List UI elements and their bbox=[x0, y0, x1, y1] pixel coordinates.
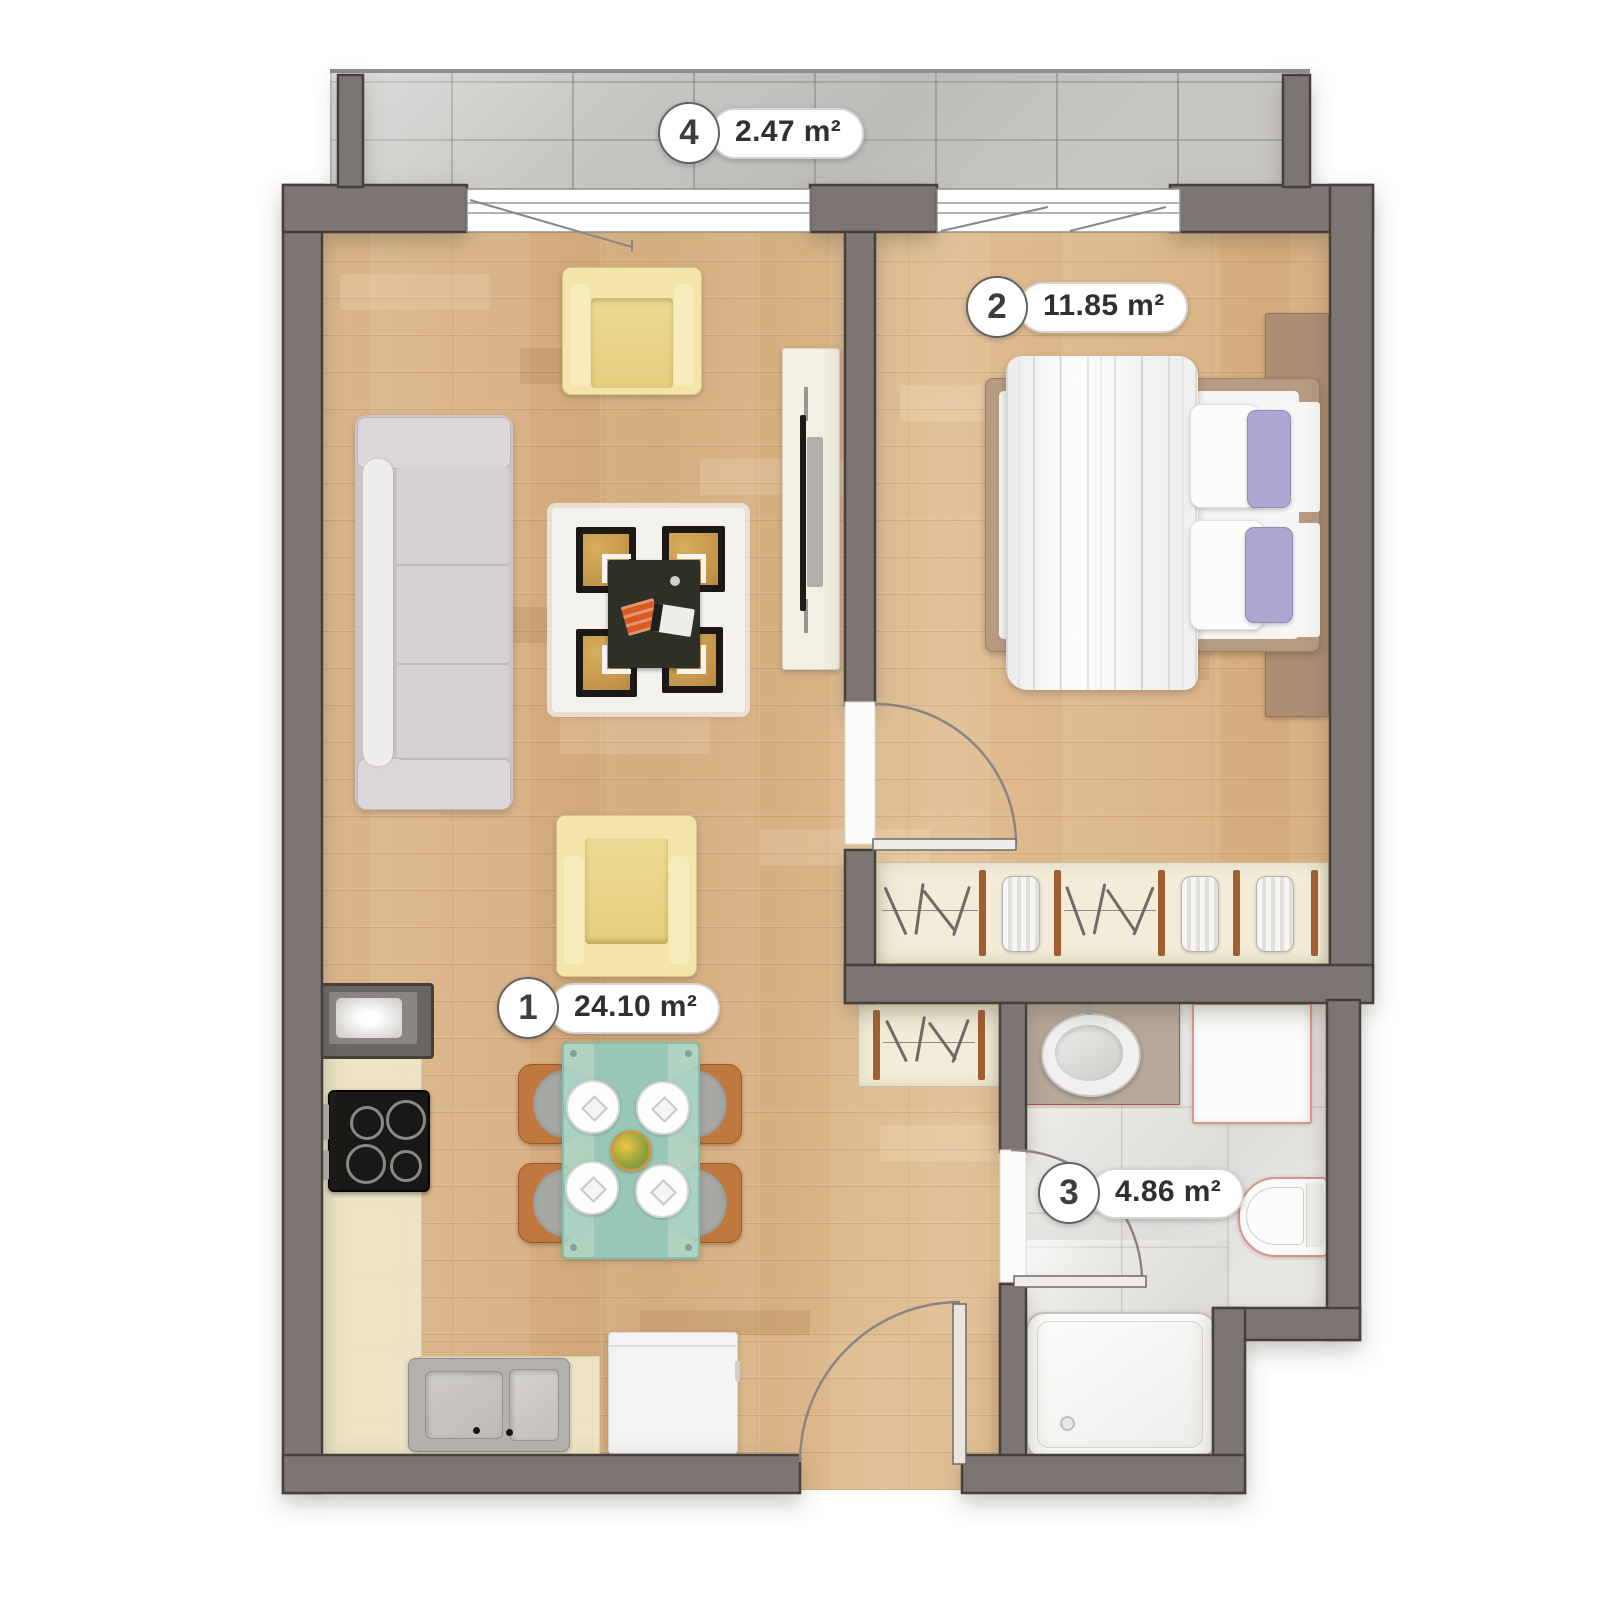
floor-plan: 1 24.10 m² 2 11.85 m² 3 4.86 m² 4 2.47 m… bbox=[0, 0, 1600, 1600]
wall-top-center bbox=[810, 185, 937, 232]
room-area-pill: 4.86 m² bbox=[1090, 1168, 1244, 1219]
room-number-badge: 2 bbox=[966, 276, 1028, 338]
room-number: 3 bbox=[1059, 1173, 1078, 1213]
walls bbox=[283, 75, 1373, 1493]
wall-divider-upper bbox=[845, 232, 875, 705]
room-label-balcony: 4 2.47 m² bbox=[658, 102, 864, 164]
balcony-wall-right bbox=[1283, 75, 1310, 187]
door-panel bbox=[953, 1304, 966, 1464]
room-area-pill: 24.10 m² bbox=[549, 983, 720, 1034]
room-area: 11.85 m² bbox=[1043, 289, 1165, 322]
bedroom-door bbox=[845, 702, 1016, 850]
wall-bath-right bbox=[1327, 1000, 1360, 1340]
room-area-pill: 2.47 m² bbox=[710, 108, 864, 159]
room-area: 2.47 m² bbox=[735, 115, 841, 148]
wall-right-bedroom bbox=[1330, 185, 1373, 1000]
balcony-wall-left bbox=[338, 75, 363, 187]
room-number: 1 bbox=[518, 988, 537, 1028]
wall-left bbox=[283, 185, 322, 1493]
wall-bath-left-upper bbox=[1000, 1003, 1026, 1152]
wall-bedroom-bottom bbox=[845, 965, 1373, 1003]
door-panel bbox=[1014, 1276, 1146, 1287]
wall-bottom-right bbox=[962, 1455, 1245, 1493]
room-number: 2 bbox=[987, 287, 1006, 327]
room-number-badge: 3 bbox=[1038, 1162, 1100, 1224]
room-area-pill: 11.85 m² bbox=[1018, 282, 1188, 333]
living-room-window bbox=[467, 189, 810, 252]
door-panel bbox=[873, 839, 1016, 850]
room-label-bathroom: 3 4.86 m² bbox=[1038, 1162, 1244, 1224]
room-number-badge: 1 bbox=[497, 977, 559, 1039]
room-area: 24.10 m² bbox=[574, 990, 697, 1023]
room-number: 4 bbox=[679, 113, 698, 153]
entry-door bbox=[800, 1302, 966, 1464]
walls-layer bbox=[0, 0, 1600, 1600]
bedroom-window bbox=[937, 189, 1180, 232]
wall-bottom-left bbox=[283, 1455, 800, 1493]
room-area: 4.86 m² bbox=[1115, 1175, 1221, 1208]
room-label-living: 1 24.10 m² bbox=[497, 977, 720, 1039]
room-number-badge: 4 bbox=[658, 102, 720, 164]
room-label-bedroom: 2 11.85 m² bbox=[966, 276, 1188, 338]
door-swing-arc bbox=[876, 704, 1016, 844]
wall-top-left bbox=[283, 185, 467, 232]
door-swing-arc bbox=[800, 1302, 960, 1462]
wall-bath-left-lower bbox=[1000, 1284, 1026, 1460]
